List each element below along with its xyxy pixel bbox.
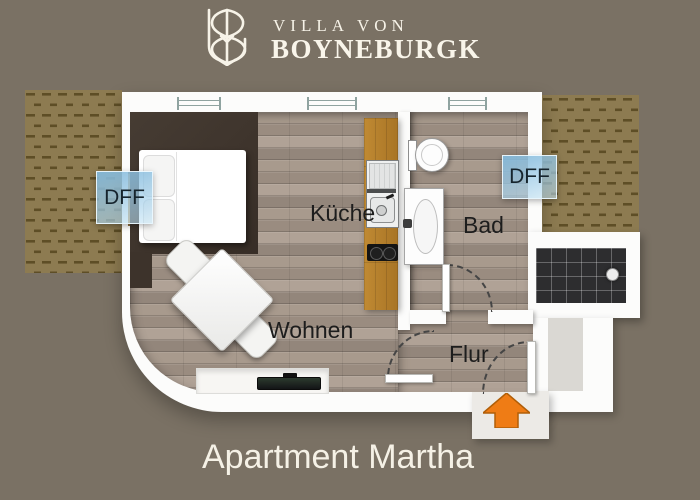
- sleeping-zone-edge: [130, 252, 152, 288]
- window-top-1: [177, 97, 221, 110]
- wall-bath-south-right: [488, 310, 533, 324]
- living-hall-door: [385, 374, 433, 383]
- room-label-hallway: Flur: [449, 341, 489, 368]
- apartment-title: Apartment Martha: [0, 438, 676, 477]
- stair-landing-inset: [548, 318, 583, 391]
- sink-divider: [367, 189, 396, 193]
- bathroom-door: [442, 264, 450, 312]
- toilet-bowl: [415, 138, 449, 172]
- brand-monogram-icon: [199, 6, 255, 66]
- roof-window-label: DFF: [104, 186, 145, 210]
- washbasin-faucet: [403, 219, 412, 228]
- brand-name-line1: VILLA VON: [273, 16, 409, 36]
- washbasin: [404, 188, 444, 265]
- bed-seam: [176, 152, 177, 241]
- room-label-bathroom: Bad: [463, 212, 504, 239]
- sink-drain: [376, 205, 387, 216]
- window-top-3: [448, 97, 487, 110]
- tv: [257, 377, 321, 390]
- burner: [370, 247, 383, 260]
- roof-window-tag-left: DFF: [96, 171, 153, 224]
- toilet-bowl-inner: [421, 144, 443, 166]
- entry-door: [527, 341, 536, 394]
- roof-window-label: DFF: [509, 165, 550, 189]
- entry-arrow-icon: [483, 393, 530, 428]
- window-top-2: [307, 97, 357, 110]
- room-label-kitchen: Küche: [310, 200, 375, 227]
- cooktop: [367, 244, 398, 261]
- roof-window-tag-right: DFF: [502, 155, 557, 199]
- wall-bath-south-left: [410, 310, 446, 324]
- terrace-tiles: [536, 248, 626, 303]
- sink-drainboard: [369, 163, 396, 189]
- floor-drain-icon: [606, 268, 619, 281]
- floorplan-page: { "header": { "brand_line1": "VILLA VON"…: [0, 0, 700, 500]
- burner: [383, 247, 396, 260]
- washbasin-bowl: [413, 199, 438, 254]
- brand-name-line2: BOYNEBURGK: [271, 34, 481, 65]
- room-label-living: Wohnen: [268, 317, 353, 344]
